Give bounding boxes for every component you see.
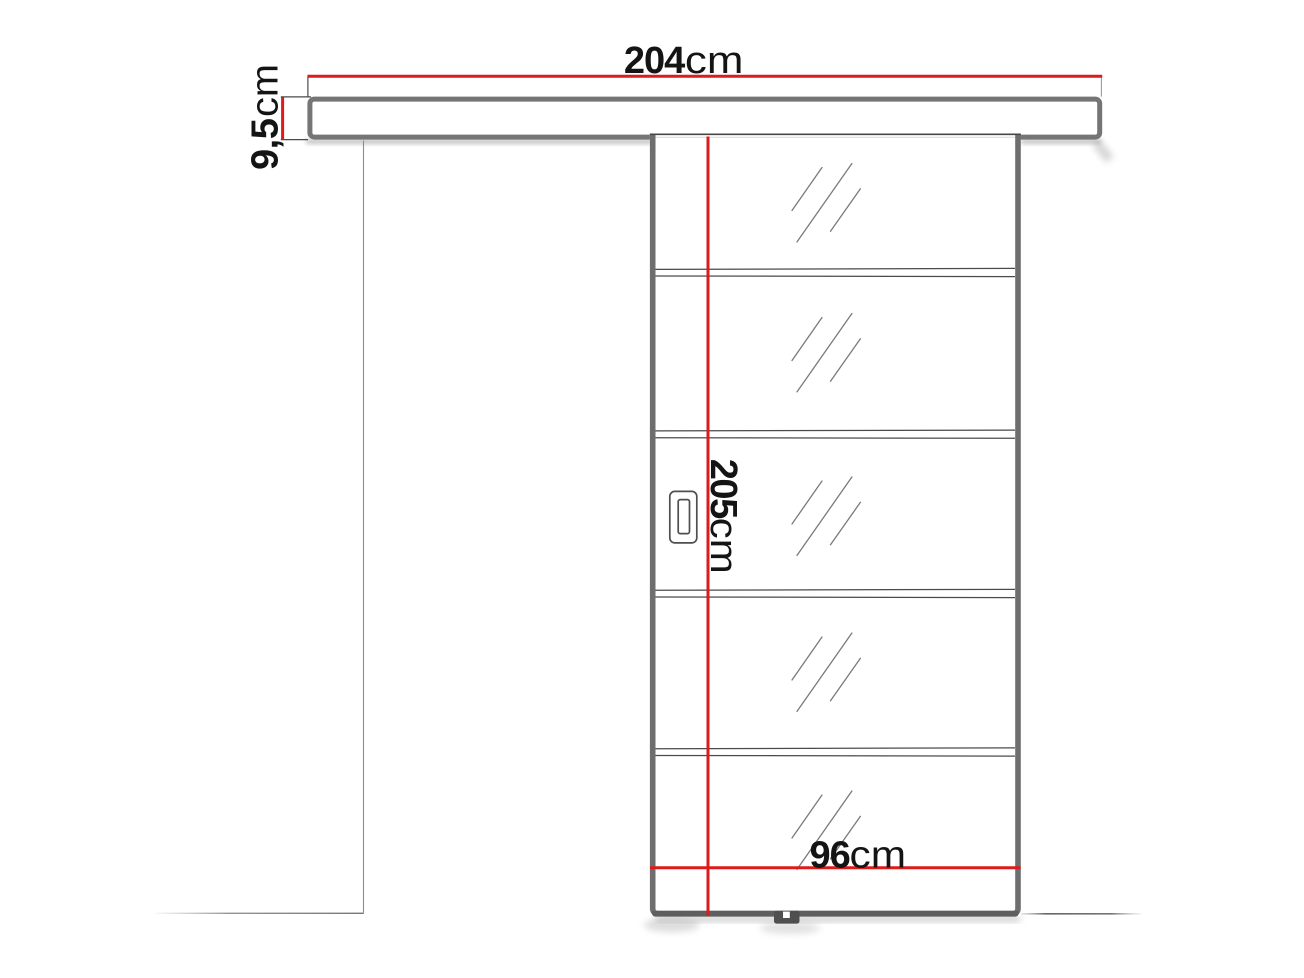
svg-text:cm: cm [685, 40, 744, 82]
svg-text:204: 204 [624, 40, 685, 82]
svg-text:cm: cm [850, 835, 907, 877]
svg-text:9,5cm: 9,5cm [245, 64, 287, 170]
svg-text:96: 96 [810, 835, 850, 877]
svg-text:205cm: 205cm [702, 459, 744, 574]
